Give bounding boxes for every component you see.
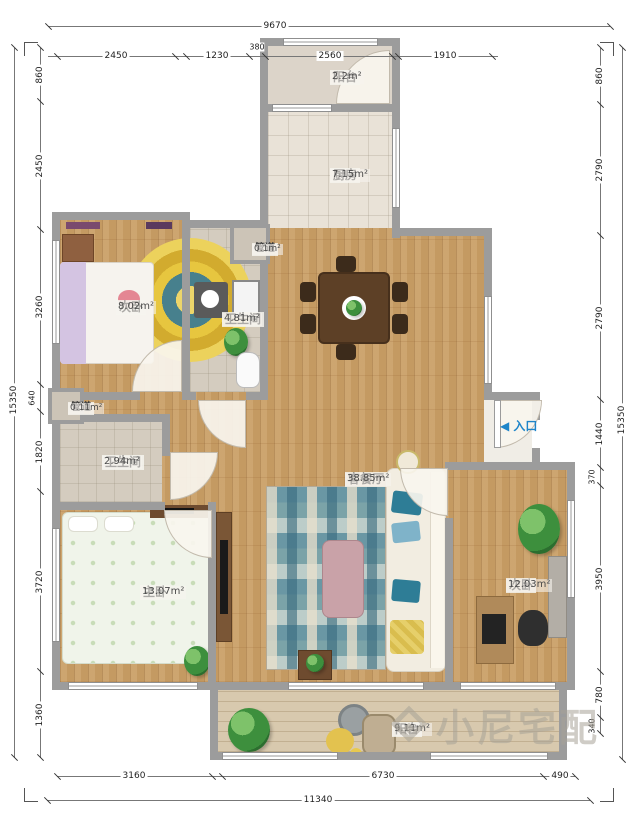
dim-label: 15350 (9, 384, 19, 417)
pillow (68, 516, 98, 532)
dim-label: 3260 (35, 294, 45, 321)
bed-blanket (60, 262, 86, 364)
wall (445, 518, 453, 690)
room-area: 0.1m² (252, 244, 283, 255)
wall (453, 462, 532, 470)
room-area: 2.2m² (330, 71, 364, 84)
dining-chair (392, 314, 408, 334)
dim-label: 860 (595, 65, 605, 86)
entrance-marker: ◀ 入口 (500, 417, 537, 434)
dim-label: 340 (588, 718, 597, 733)
dim-label: 2450 (103, 51, 130, 61)
room-area: 0.11m² (68, 403, 104, 414)
wall-deco (146, 222, 172, 229)
tv (220, 540, 228, 614)
dim-label: 1820 (35, 439, 45, 466)
window (222, 752, 338, 760)
plant-balcony (228, 708, 270, 752)
wall (52, 502, 165, 510)
room-area: 2.94m² (102, 456, 142, 469)
dim-label: 3720 (35, 569, 45, 596)
wall (52, 212, 190, 220)
corner-mark (600, 788, 614, 802)
wall (559, 690, 567, 752)
floor-plan: 阳台 2.2m² 厨房 7.15m² 管道 0.1m² 次卧 8.02m² 卫生… (0, 0, 640, 817)
dim-label: 780 (595, 684, 605, 705)
dining-chair (336, 256, 356, 272)
window (392, 128, 400, 208)
dim-label: 640 (28, 390, 37, 405)
wall (190, 392, 196, 400)
dim-label: 1440 (595, 421, 605, 448)
window (283, 38, 378, 46)
window (68, 682, 198, 690)
sofa-throw (390, 620, 424, 654)
window (430, 752, 548, 760)
plant-master (184, 646, 210, 676)
dim-label: 1230 (204, 51, 231, 61)
wall (182, 220, 190, 400)
room-area: 4.81m² (222, 313, 262, 326)
rattan-chair (362, 714, 396, 756)
wall (392, 228, 492, 236)
desk-chair (518, 610, 548, 646)
dim-label: 2450 (35, 153, 45, 180)
wall (210, 690, 218, 760)
dim-line-right-segments (600, 48, 601, 734)
wardrobe (548, 556, 567, 638)
window (52, 240, 60, 344)
dim-label: 2790 (595, 305, 605, 332)
corner-mark (24, 788, 38, 802)
dim-label: 3160 (121, 771, 148, 781)
dim-label: 1360 (35, 702, 45, 729)
side-table-plant (306, 654, 324, 672)
window (460, 682, 556, 690)
balcony-door (288, 682, 424, 690)
dim-label: 1910 (432, 51, 459, 61)
room-area: 9.11m² (392, 723, 432, 736)
wall (260, 38, 268, 238)
dim-label: 370 (588, 469, 597, 484)
room-area: 12.03m² (506, 579, 552, 592)
dim-label: 3950 (595, 566, 605, 593)
dim-label: 9670 (262, 21, 289, 31)
wall-deco (66, 222, 100, 229)
entrance-arrow-icon: ◀ (500, 419, 509, 433)
dresser (62, 234, 94, 262)
dim-label: 860 (35, 64, 45, 85)
window (272, 104, 332, 112)
dining-chair (300, 282, 316, 302)
wall (162, 414, 170, 456)
window (52, 528, 60, 642)
laptop (482, 614, 506, 644)
room-area: 13.07m² (140, 586, 186, 599)
dining-chair (392, 282, 408, 302)
room-area: 8.02m² (116, 301, 156, 314)
room-area: 38.85m² (345, 473, 391, 486)
dining-chair (336, 344, 356, 360)
sofa-pillow (391, 579, 421, 603)
dim-label: 11340 (302, 795, 335, 805)
dim-label: 2560 (317, 51, 344, 61)
dim-label: 2790 (595, 157, 605, 184)
plant-bedroom-right (518, 504, 560, 554)
sofa-pillow (391, 521, 421, 544)
dim-label: 15350 (617, 404, 627, 437)
pillow (104, 516, 134, 532)
dim-label: 380 (249, 43, 264, 52)
coffee-table (322, 540, 364, 618)
entrance-label: 入口 (513, 419, 537, 433)
dining-chair (300, 314, 316, 334)
window (484, 296, 492, 384)
sink (201, 290, 219, 308)
window (567, 500, 575, 598)
table-centerpiece (346, 300, 362, 316)
dim-label: 6730 (370, 771, 397, 781)
dim-label: 490 (549, 771, 570, 781)
toilet (236, 352, 260, 388)
room-area: 7.15m² (330, 169, 370, 182)
dim-line-top-total (48, 26, 610, 27)
